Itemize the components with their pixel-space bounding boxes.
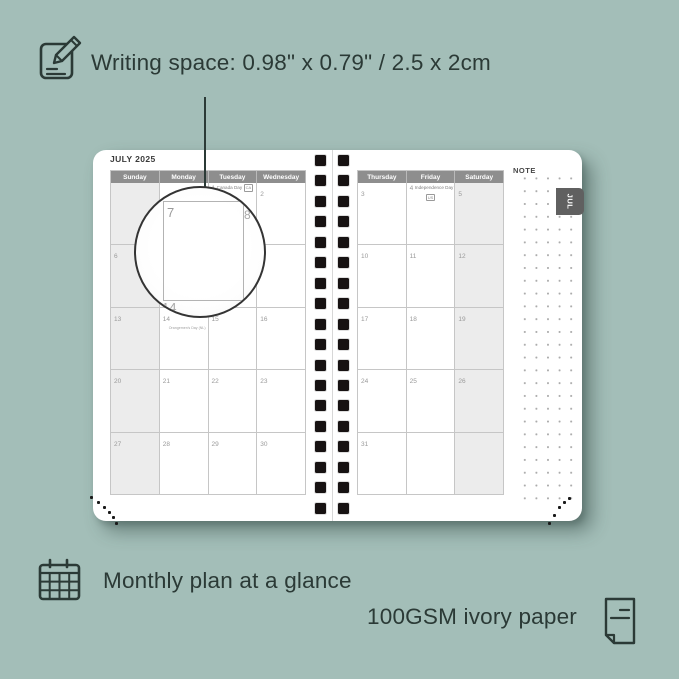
caption-monthly-plan: Monthly plan at a glance xyxy=(103,568,352,594)
caption-paper: 100GSM ivory paper xyxy=(367,604,577,630)
date-number: 10 xyxy=(358,252,368,261)
binding-hole xyxy=(315,237,326,248)
writing-space-box xyxy=(163,201,244,301)
stitch-dot xyxy=(558,506,561,509)
date-number xyxy=(160,194,163,197)
date-cell: 16 xyxy=(257,308,306,370)
date-cell: 13 xyxy=(111,308,160,370)
binding-hole xyxy=(338,196,349,207)
day-header: Friday xyxy=(407,171,456,183)
binding-hole xyxy=(338,421,349,432)
date-cell: 15 xyxy=(209,308,258,370)
binding-hole xyxy=(315,155,326,166)
binding-hole xyxy=(315,257,326,268)
date-number: 2 xyxy=(257,190,264,199)
date-number: 20 xyxy=(111,377,121,386)
binding-hole xyxy=(315,298,326,309)
binding-hole xyxy=(338,360,349,371)
stitch-dot xyxy=(568,497,571,500)
binding-hole xyxy=(315,462,326,473)
binding-hole xyxy=(338,400,349,411)
stitch-dot xyxy=(115,522,118,525)
binding-hole xyxy=(315,400,326,411)
date-number xyxy=(407,443,410,446)
date-cell: 28 xyxy=(160,433,209,495)
binding-hole xyxy=(315,175,326,186)
date-number: 26 xyxy=(455,377,465,386)
binding-hole xyxy=(315,360,326,371)
magnified-day-number: 7 xyxy=(167,205,174,220)
month-title: JULY 2025 xyxy=(110,154,156,164)
date-cell: 29 xyxy=(209,433,258,495)
date-cell: 24 xyxy=(358,370,407,432)
date-number: 16 xyxy=(257,314,267,323)
binding-hole xyxy=(338,482,349,493)
binding-hole xyxy=(315,216,326,227)
binding-hole xyxy=(338,441,349,452)
stitch-dot xyxy=(548,522,551,525)
note-dot-grid xyxy=(517,168,576,509)
date-number: 14 xyxy=(160,314,170,323)
date-number: 21 xyxy=(160,377,170,386)
date-cell: 18 xyxy=(407,308,456,370)
binding-hole xyxy=(338,257,349,268)
magnifier-circle: 7 8 14 xyxy=(134,186,266,318)
page-seam xyxy=(332,150,333,521)
binding-hole xyxy=(315,421,326,432)
binding-hole xyxy=(338,319,349,330)
stitch-dot xyxy=(97,501,100,504)
stitch-dot xyxy=(553,514,556,517)
binding-hole xyxy=(315,380,326,391)
date-number: 28 xyxy=(160,439,170,448)
date-number: 12 xyxy=(455,252,465,261)
date-cell: 17 xyxy=(358,308,407,370)
day-header: Monday xyxy=(160,171,209,183)
holiday-name: Orangemen's Day (NL) xyxy=(169,327,208,331)
date-number: 29 xyxy=(209,439,219,448)
date-number: 18 xyxy=(407,314,417,323)
magnified-adjacent-day: 14 xyxy=(162,300,176,315)
right-page-calendar: ThursdayFridaySaturday34Independence Day… xyxy=(357,170,504,495)
date-number: 22 xyxy=(209,377,219,386)
date-cell: 22 xyxy=(209,370,258,432)
date-number: 23 xyxy=(257,377,267,386)
date-cell: 30 xyxy=(257,433,306,495)
date-number: 13 xyxy=(111,314,121,323)
binding-hole xyxy=(338,503,349,514)
date-cell: 31 xyxy=(358,433,407,495)
date-cell: 3 xyxy=(358,183,407,245)
binding-hole xyxy=(315,196,326,207)
date-cell: 19 xyxy=(455,308,504,370)
caption-writing-space: Writing space: 0.98" x 0.79" / 2.5 x 2cm xyxy=(91,50,491,76)
stitch-dot xyxy=(103,506,106,509)
date-cell: 12 xyxy=(455,245,504,307)
day-header: Saturday xyxy=(455,171,504,183)
magnified-adjacent-day: 8 xyxy=(244,208,251,222)
day-header: Tuesday xyxy=(209,171,258,183)
date-number: 19 xyxy=(455,314,465,323)
binding-hole xyxy=(315,441,326,452)
holiday-country-tag: US xyxy=(426,194,436,202)
date-cell: 27 xyxy=(111,433,160,495)
connector-line xyxy=(204,97,206,189)
date-cell: 4Independence DayUS xyxy=(407,183,456,245)
stitch-dot xyxy=(90,496,93,499)
date-number: 24 xyxy=(358,377,368,386)
date-number: 27 xyxy=(111,439,121,448)
binding-hole xyxy=(338,278,349,289)
binding-hole xyxy=(338,175,349,186)
binding-hole xyxy=(315,482,326,493)
day-header: Thursday xyxy=(358,171,407,183)
date-cell: 11 xyxy=(407,245,456,307)
product-image: Writing space: 0.98" x 0.79" / 2.5 x 2cm… xyxy=(0,0,679,679)
binding-hole xyxy=(338,339,349,350)
date-number: 30 xyxy=(257,439,267,448)
binding-hole xyxy=(338,462,349,473)
planner-spread: JULY 2025 SundayMondayTuesdayWednesday1C… xyxy=(93,150,582,521)
date-cell xyxy=(455,433,504,495)
binding-hole xyxy=(338,298,349,309)
date-number: 4 xyxy=(407,184,414,192)
date-cell: 26 xyxy=(455,370,504,432)
date-number: 31 xyxy=(358,439,368,448)
binding-hole xyxy=(338,237,349,248)
date-cell: 20 xyxy=(111,370,160,432)
date-number: 11 xyxy=(407,252,417,261)
stitch-dot xyxy=(108,511,111,514)
binding-hole xyxy=(315,339,326,350)
binding-hole xyxy=(338,380,349,391)
date-cell: 2 xyxy=(257,183,306,245)
note-label: NOTE xyxy=(513,166,539,176)
stitch-dot xyxy=(563,501,566,504)
date-cell: 23 xyxy=(257,370,306,432)
binding-hole xyxy=(315,319,326,330)
binding-hole xyxy=(315,278,326,289)
stitch-dot xyxy=(112,516,115,519)
document-icon xyxy=(598,596,640,648)
date-number: 5 xyxy=(455,190,462,199)
holiday-country-tag: CA xyxy=(244,184,254,192)
date-cell: 5 xyxy=(455,183,504,245)
date-number: 6 xyxy=(111,252,118,261)
day-header: Sunday xyxy=(111,171,160,183)
binding-hole xyxy=(338,216,349,227)
calendar-grid-icon xyxy=(36,556,83,604)
holiday-name: Independence Day xyxy=(415,184,454,191)
note-pencil-icon xyxy=(38,34,84,82)
binding-hole xyxy=(338,155,349,166)
date-number xyxy=(111,194,114,197)
date-number xyxy=(455,443,458,446)
date-cell xyxy=(407,433,456,495)
date-cell: 21 xyxy=(160,370,209,432)
date-number: 17 xyxy=(358,314,368,323)
date-cell: 25 xyxy=(407,370,456,432)
month-tab-label: JUL xyxy=(565,194,574,210)
month-tab: JUL xyxy=(556,188,584,215)
binding-hole xyxy=(315,503,326,514)
day-header: Wednesday xyxy=(257,171,306,183)
date-cell: 10 xyxy=(358,245,407,307)
date-number: 25 xyxy=(407,377,417,386)
date-number: 3 xyxy=(358,190,365,199)
